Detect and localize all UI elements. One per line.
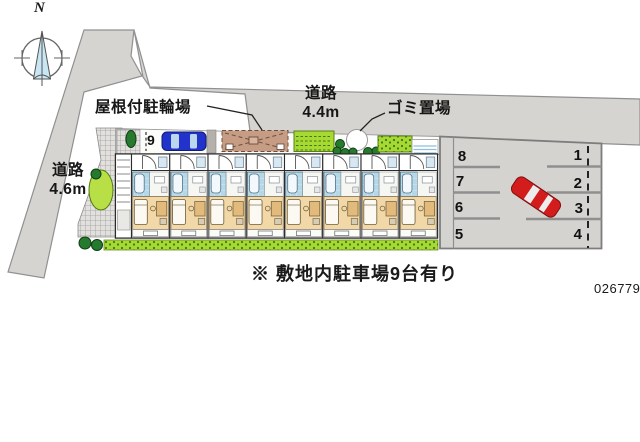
stairs <box>116 154 132 238</box>
parking-space-number: 4 <box>562 226 582 243</box>
road-top-width: 4.4m <box>296 103 346 122</box>
road-top <box>134 30 640 145</box>
building-unit <box>132 154 170 238</box>
site-note: ※ 敷地内駐車場9台有り <box>251 260 458 286</box>
building-units <box>132 154 438 238</box>
planter-rack <box>294 131 334 152</box>
road-left-name: 道路 <box>47 161 89 180</box>
parking-space-number: 6 <box>450 199 468 216</box>
building-unit <box>361 154 399 238</box>
blue-car-icon <box>162 132 206 151</box>
bottom-left-bushes <box>79 237 103 251</box>
driveway-divider <box>207 130 216 153</box>
road-top-label: 道路 4.4m <box>296 84 346 122</box>
building-unit <box>208 154 246 238</box>
covered-bicycle-parking-area <box>222 131 288 152</box>
parking-space-number: 8 <box>453 148 471 165</box>
road-left-width: 4.6m <box>47 180 89 199</box>
parking-space-number: 1 <box>562 147 582 164</box>
compass-north-label: N <box>34 0 45 17</box>
garbage-label: ゴミ置場 <box>387 96 451 118</box>
parking-space-number: 7 <box>451 173 469 190</box>
parking-space-number: 2 <box>562 175 582 192</box>
site-plan-drawing <box>0 0 640 442</box>
parking-space-number: 5 <box>450 226 468 243</box>
compass <box>14 31 70 86</box>
grating-steps <box>412 140 438 155</box>
building-unit <box>285 154 323 238</box>
tree-icon <box>126 131 136 148</box>
lawn-strip <box>104 240 438 250</box>
parking-space-number-9: 9 <box>147 132 155 148</box>
site-plan: N 屋根付駐輪場 道路 4.4m ゴミ置場 道路 4.6m 9 8 7 6 5 … <box>0 0 640 442</box>
building-unit <box>399 154 437 238</box>
left-bush <box>89 169 113 210</box>
bicycle-parking-label: 屋根付駐輪場 <box>95 95 191 117</box>
parking-space-number: 3 <box>563 200 583 217</box>
building-unit <box>246 154 284 238</box>
road-top-name: 道路 <box>296 84 346 103</box>
plan-number: 026779 <box>594 281 640 296</box>
building-unit <box>323 154 361 238</box>
building-unit <box>170 154 208 238</box>
hedge-box <box>378 136 412 152</box>
building <box>116 154 438 238</box>
road-left-label: 道路 4.6m <box>47 161 89 199</box>
